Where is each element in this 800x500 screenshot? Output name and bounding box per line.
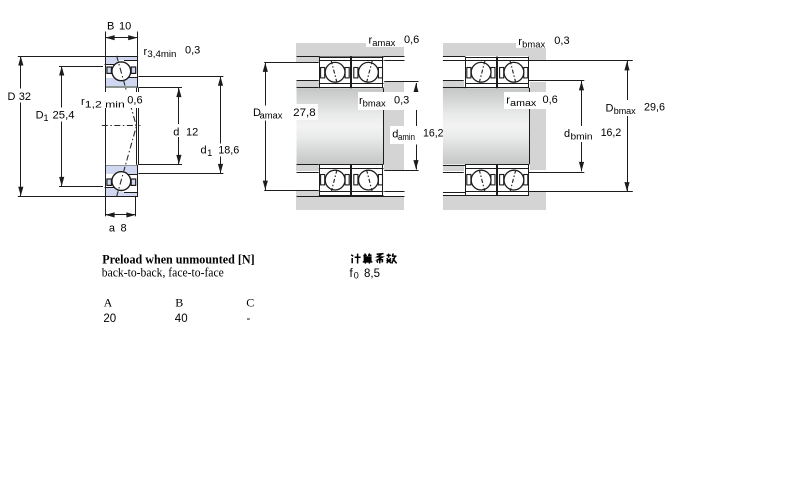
svg-text:25,4: 25,4 [53, 110, 75, 122]
svg-text:8,5: 8,5 [364, 268, 380, 280]
svg-text:bmax: bmax [614, 106, 636, 116]
svg-text:B: B [175, 296, 183, 310]
svg-text:40: 40 [175, 313, 188, 325]
svg-text:0,3: 0,3 [394, 95, 409, 107]
svg-text:0,3: 0,3 [185, 45, 200, 57]
svg-text:32: 32 [19, 91, 31, 103]
svg-text:C: C [246, 296, 254, 310]
svg-text:0,6: 0,6 [404, 34, 419, 46]
svg-text:18,6: 18,6 [218, 145, 239, 157]
svg-text:bmax: bmax [522, 39, 546, 49]
svg-text:A: A [104, 296, 113, 310]
svg-text:D: D [36, 110, 44, 122]
svg-text:29,6: 29,6 [644, 102, 665, 114]
svg-text:D: D [606, 102, 614, 114]
svg-text:bmax: bmax [363, 99, 387, 109]
svg-text:d: d [173, 127, 179, 139]
svg-text:d: d [564, 128, 570, 140]
svg-text:0,6: 0,6 [127, 94, 142, 106]
svg-text:27,8: 27,8 [293, 107, 316, 119]
svg-text:12: 12 [186, 127, 198, 139]
svg-text:3,4min: 3,4min [147, 49, 176, 59]
svg-text:-: - [247, 313, 251, 325]
svg-text:bmin: bmin [571, 132, 593, 142]
svg-text:amax: amax [260, 111, 284, 121]
svg-text:0: 0 [354, 271, 359, 281]
svg-text:amax: amax [510, 98, 537, 108]
svg-text:back-to-back, face-to-face: back-to-back, face-to-face [102, 265, 224, 279]
svg-text:a: a [109, 223, 116, 235]
svg-text:0,3: 0,3 [554, 35, 569, 47]
svg-text:1: 1 [44, 113, 49, 123]
svg-text:8: 8 [121, 223, 127, 235]
svg-text:1,2 min: 1,2 min [85, 99, 125, 109]
svg-text:d: d [201, 145, 207, 157]
svg-text:amax: amax [372, 38, 396, 48]
svg-text:16,2: 16,2 [423, 128, 444, 140]
svg-text:16,2: 16,2 [601, 127, 622, 139]
svg-text:amin: amin [398, 132, 415, 142]
svg-text:D: D [8, 91, 16, 103]
svg-text:20: 20 [103, 313, 116, 325]
svg-text:0,6: 0,6 [543, 94, 558, 106]
svg-text:B: B [107, 21, 114, 33]
svg-text:1: 1 [207, 148, 212, 158]
svg-text:10: 10 [119, 21, 131, 33]
